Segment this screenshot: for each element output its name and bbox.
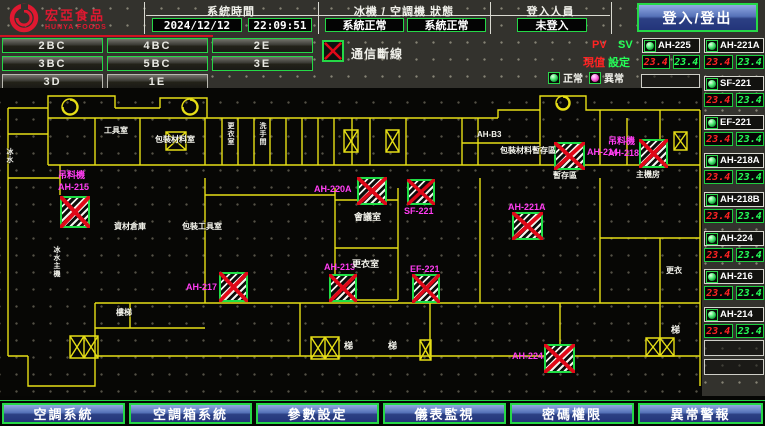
equip-marker-ah-224[interactable] — [544, 344, 575, 373]
normal-legend-label: 正常 — [563, 70, 583, 85]
equip-marker-ah-218[interactable] — [639, 139, 668, 168]
unit-led-icon — [706, 309, 718, 321]
unit-ah-216[interactable]: AH-216 23.4 23.4 — [704, 269, 764, 300]
unit-led-icon — [706, 271, 718, 283]
equip-marker-ef-221[interactable] — [412, 274, 440, 303]
floor-button-2e[interactable]: 2E — [212, 38, 313, 53]
unit-sv-value: 23.4 — [736, 132, 765, 146]
unit-ah-218b[interactable]: AH-218B 23.4 23.4 — [704, 192, 764, 223]
equip-marker-ah-220a[interactable] — [357, 177, 387, 205]
floor-button-1e[interactable]: 1E — [107, 74, 208, 89]
unit-pv-value: 23.4 — [704, 286, 733, 300]
room-label: 梯 — [388, 342, 397, 351]
comm-error-label: 通信斷線 — [351, 45, 403, 62]
unit-ah-214[interactable]: AH-214 23.4 23.4 — [704, 307, 764, 338]
room-label: 冰水 — [5, 148, 14, 164]
hunya-logo-icon — [8, 2, 40, 34]
unit-pv-value: 23.4 — [704, 93, 733, 107]
sv-header: SV — [618, 39, 633, 51]
room-label: 冰水主機 — [52, 246, 61, 278]
hmi-screen: { "header": { "logo_title": "宏亞食品", "log… — [0, 0, 765, 426]
unit-sf-221[interactable]: SF-221 23.4 23.4 — [704, 76, 764, 107]
unit-name: AH-218B — [720, 194, 760, 205]
unit-led-icon — [644, 40, 656, 52]
login-logout-button[interactable]: 登入/登出 — [637, 3, 758, 32]
nav-ahu-system[interactable]: 空調箱系統 — [129, 403, 252, 424]
unit-sv-value: 23.4 — [736, 209, 765, 223]
normal-legend: 正常 — [548, 70, 583, 85]
system-date-value: 2024/12/12 — [152, 18, 242, 32]
nav-password-rights[interactable]: 密碼權限 — [510, 403, 634, 424]
unit-pv-value: 23.4 — [704, 55, 733, 69]
equip-label: AH-224 — [512, 351, 543, 362]
nav-divider — [0, 400, 765, 401]
room-label: 資材倉庫 — [114, 222, 146, 231]
equip-label: AH-215 — [58, 182, 89, 193]
chiller-status-value: 系統正常 — [325, 18, 404, 32]
room-label: 洗手間 — [258, 122, 267, 146]
header-red-divider — [0, 35, 213, 37]
empty-slot — [641, 74, 700, 88]
ahu-status-value: 系統正常 — [407, 18, 486, 32]
room-label: 暫存區 — [553, 171, 577, 180]
unit-sv-value: 23.4 — [736, 324, 765, 338]
logo-title: 宏亞食品 — [45, 5, 107, 24]
unit-ah-224[interactable]: AH-224 23.4 23.4 — [704, 231, 764, 262]
unit-pv-value: 23.4 — [704, 170, 733, 184]
room-label: 梯 — [344, 342, 353, 351]
floor-button-3bc[interactable]: 3BC — [2, 56, 103, 71]
unit-name: AH-218A — [720, 155, 760, 166]
equip-label: EF-221 — [410, 264, 440, 275]
equip-marker-ah-213[interactable] — [329, 274, 357, 302]
equip-marker-ah-215[interactable] — [60, 196, 90, 228]
equip-marker-ah-217[interactable] — [219, 272, 248, 302]
equip-label: AH-213 — [324, 262, 355, 273]
unit-sv-value: 23.4 — [736, 55, 765, 69]
equip-marker-ah-214[interactable] — [554, 142, 585, 170]
unit-pv-value: 23.4 — [704, 248, 733, 262]
unit-name: SF-221 — [720, 78, 751, 89]
sv-cn-header: 設定 — [608, 54, 630, 70]
unit-name: AH-214 — [720, 309, 753, 320]
equip-label: AH-221A — [508, 202, 546, 213]
login-state-value: 未登入 — [517, 18, 587, 32]
nav-alarm[interactable]: 異常警報 — [638, 403, 763, 424]
unit-led-icon — [706, 40, 718, 52]
equip-label: AH-218 — [608, 148, 639, 159]
unit-ah-218a[interactable]: AH-218A 23.4 23.4 — [704, 153, 764, 184]
abnormal-legend: 異常 — [589, 70, 624, 85]
unit-ah-225[interactable]: AH-225 23.4 23.4 — [642, 38, 700, 69]
unit-ef-221[interactable]: EF-221 23.4 23.4 — [704, 115, 764, 146]
unit-pv-value: 23.4 — [704, 324, 733, 338]
room-label: 更衣室 — [352, 260, 379, 269]
unit-led-icon — [706, 155, 718, 167]
floor-button-5bc[interactable]: 5BC — [107, 56, 208, 71]
unit-sv-value: 23.4 — [736, 93, 765, 107]
unit-sv-value: 23.4 — [736, 170, 765, 184]
nav-meter-monitor[interactable]: 儀表監視 — [383, 403, 506, 424]
equip-label: AH-220A — [314, 184, 352, 195]
empty-slot — [704, 359, 764, 375]
system-time-label: 系統時間 — [146, 3, 316, 19]
floor-button-3d[interactable]: 3D — [2, 74, 103, 89]
unit-led-icon — [706, 194, 718, 206]
nav-parameter-settings[interactable]: 參數設定 — [256, 403, 379, 424]
equip-label-tag: 吊料機 — [58, 170, 85, 181]
abnormal-legend-label: 異常 — [604, 70, 624, 85]
room-label: 工具室 — [104, 126, 128, 135]
unit-pv-value: 23.4 — [642, 55, 670, 69]
unit-ah-221a[interactable]: AH-221A 23.4 23.4 — [704, 38, 764, 69]
floor-plan: 吊料機 AH-215 AH-220A SF-221 AH-213 EF-221 … — [0, 88, 702, 396]
empty-slot — [704, 340, 764, 356]
nav-ac-system[interactable]: 空調系統 — [2, 403, 125, 424]
normal-led-icon — [548, 72, 560, 84]
room-label: 包裝材料暫存區 — [500, 146, 556, 155]
room-label: 更衣 — [666, 266, 682, 275]
unit-name: EF-221 — [720, 117, 751, 128]
unit-sv-value: 23.4 — [673, 55, 701, 69]
logo-subtitle: HUNYA FOODS — [45, 24, 107, 31]
room-label: 梯 — [671, 326, 680, 335]
abnormal-led-icon — [589, 72, 601, 84]
room-label: 包裝工具室 — [182, 222, 222, 231]
comm-error-icon — [322, 40, 344, 62]
unit-sv-value: 23.4 — [736, 248, 765, 262]
brand-logo: 宏亞食品 HUNYA FOODS — [8, 2, 107, 34]
unit-led-icon — [706, 117, 718, 129]
unit-name: AH-216 — [720, 271, 753, 282]
equip-label-tag: 吊料機 — [608, 136, 635, 147]
equip-marker-sf-221[interactable] — [407, 179, 435, 205]
room-label: AH-B3 — [477, 130, 501, 139]
unit-name: AH-225 — [658, 40, 691, 51]
unit-name: AH-224 — [720, 233, 753, 244]
floor-button-3e[interactable]: 3E — [212, 56, 313, 71]
pv-cn-header: 現值 — [583, 54, 605, 70]
pv-header: PV — [592, 39, 607, 51]
unit-pv-value: 23.4 — [704, 132, 733, 146]
unit-led-icon — [706, 233, 718, 245]
equip-label: SF-221 — [404, 206, 434, 217]
header-bar: 宏亞食品 HUNYA FOODS 系統時間 2024/12/12 22:09:5… — [0, 0, 765, 36]
unit-name: AH-221A — [720, 40, 760, 51]
unit-pv-value: 23.4 — [704, 209, 733, 223]
equip-label: AH-217 — [186, 282, 217, 293]
unit-sv-value: 23.4 — [736, 286, 765, 300]
room-label: 主機房 — [636, 170, 660, 179]
equip-marker-ah-221a[interactable] — [512, 212, 543, 240]
floor-button-4bc[interactable]: 4BC — [107, 38, 208, 53]
room-label: 更衣室 — [226, 122, 235, 146]
floor-button-2bc[interactable]: 2BC — [2, 38, 103, 53]
room-label: 包裝材料室 — [155, 135, 195, 144]
system-clock-value: 22:09:51 — [248, 18, 312, 32]
room-label: 樓梯 — [116, 308, 132, 317]
room-label: 會議室 — [354, 213, 381, 222]
unit-led-icon — [706, 78, 718, 90]
